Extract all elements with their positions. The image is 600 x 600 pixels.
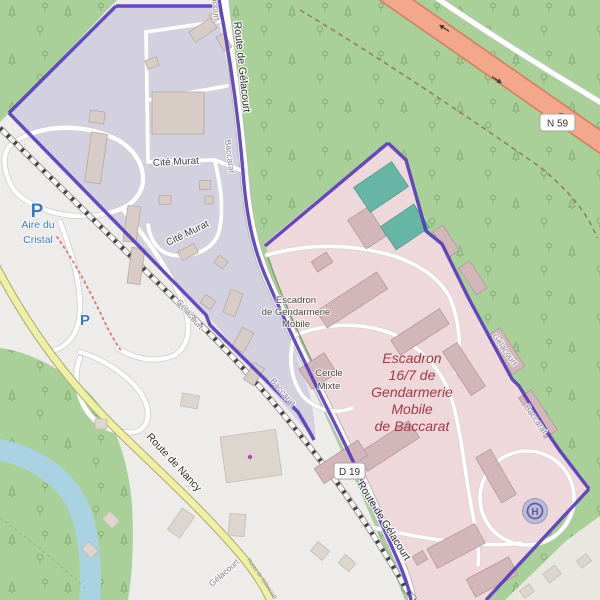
label-escadron-poi-2: de Gendarmerie xyxy=(262,307,331,318)
label-aire-du-cristal-2: Cristal xyxy=(23,234,53,246)
label-cercle-mixte-1: Cercle xyxy=(315,368,342,379)
shield-n59: N 59 xyxy=(540,114,575,131)
helipad-icon: H xyxy=(523,499,548,524)
label-military-area-3: Gendarmerie xyxy=(371,384,453,400)
label-military-area-2: 16/7 de xyxy=(389,367,436,383)
map-canvas[interactable]: H N 59 D 19 Route de Gélacourt Baccarat … xyxy=(0,0,600,600)
label-aire-du-cristal-1: Aire du xyxy=(21,219,54,231)
shield-d19: D 19 xyxy=(334,463,365,479)
label-military-area-1: Escadron xyxy=(382,350,441,366)
shield-n59-text: N 59 xyxy=(547,119,569,130)
helipad-letter: H xyxy=(531,507,538,518)
label-escadron-poi-1: Escadron xyxy=(276,295,316,306)
parking-icon-2: P xyxy=(80,312,90,329)
poi-dot xyxy=(248,455,252,459)
label-escadron-poi-3: Mobile xyxy=(282,319,310,330)
label-military-area-4: Mobile xyxy=(391,401,432,417)
shield-d19-text: D 19 xyxy=(339,467,361,478)
label-cercle-mixte-2: Mixte xyxy=(318,381,341,392)
label-military-area-5: de Baccarat xyxy=(375,418,451,434)
